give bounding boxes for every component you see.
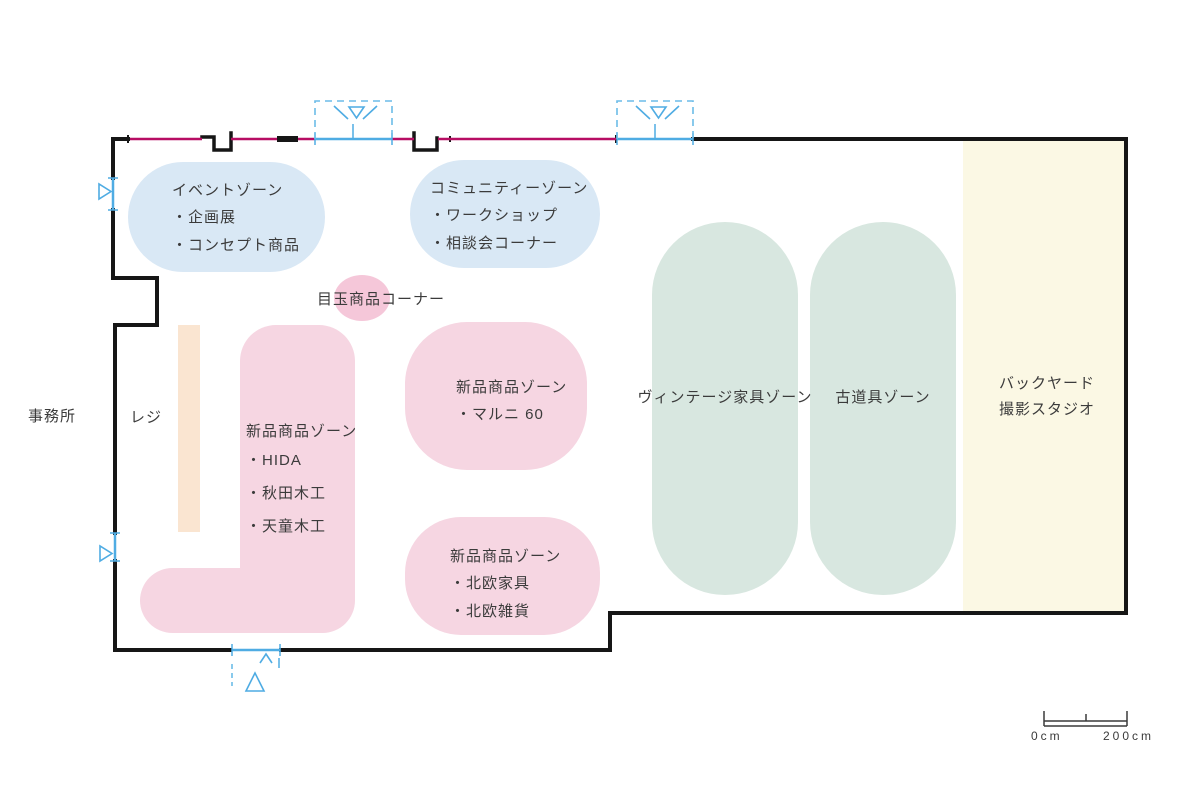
zone-item: ・コンセプト商品	[172, 238, 300, 254]
domestic-zone-text: 新品商品ゾーン ・HIDA ・秋田木工 ・天童木工	[246, 424, 357, 552]
zone-item: ・相談会コーナー	[430, 236, 588, 252]
zone-vintage	[652, 222, 798, 595]
zone-item: ・マルニ 60	[456, 407, 567, 423]
backyard-label: バックヤード	[999, 372, 1095, 393]
zone-item: ・北欧雑貨	[450, 604, 561, 620]
office-label: 事務所	[28, 405, 76, 426]
scale-bar	[1044, 711, 1127, 726]
zone-item: ・ワークショップ	[430, 208, 588, 224]
floor-plan: イベントゾーン ・企画展 ・コンセプト商品 コミュニティーゾーン ・ワークショッ…	[0, 0, 1200, 800]
zone-title: イベントゾーン	[172, 183, 300, 199]
register-label: レジ	[130, 406, 162, 427]
wall-ticks	[128, 135, 616, 143]
studio-label: 撮影スタジオ	[999, 398, 1095, 419]
zone-item: ・秋田木工	[246, 486, 357, 502]
zone-item: ・HIDA	[246, 453, 357, 469]
door-arrow-icon	[99, 184, 112, 561]
nordic-zone-text: 新品商品ゾーン ・北欧家具 ・北欧雑貨	[450, 549, 561, 632]
zone-domestic-foot	[140, 568, 355, 633]
scale-end-label: 200cm	[1103, 729, 1154, 743]
zone-antique	[810, 222, 956, 595]
vintage-zone-label: ヴィンテージ家具ゾーン	[638, 386, 813, 407]
zone-item: ・北欧家具	[450, 576, 561, 592]
zone-title: 新品商品ゾーン	[456, 380, 567, 396]
spotlight-label: 目玉商品コーナー	[317, 288, 445, 309]
scale-start-label: 0cm	[1031, 729, 1063, 743]
maruni-zone-text: 新品商品ゾーン ・マルニ 60	[456, 380, 567, 435]
antique-zone-label: 古道具ゾーン	[835, 386, 930, 407]
zone-item: ・企画展	[172, 210, 300, 226]
zone-title: 新品商品ゾーン	[246, 424, 357, 440]
register-counter	[178, 325, 200, 532]
zone-item: ・天童木工	[246, 519, 357, 535]
community-zone-text: コミュニティーゾーン ・ワークショップ ・相談会コーナー	[430, 181, 588, 264]
zone-title: コミュニティーゾーン	[430, 181, 588, 197]
event-zone-text: イベントゾーン ・企画展 ・コンセプト商品	[172, 183, 300, 266]
wall-pillar-icon	[202, 133, 437, 150]
zone-title: 新品商品ゾーン	[450, 549, 561, 565]
